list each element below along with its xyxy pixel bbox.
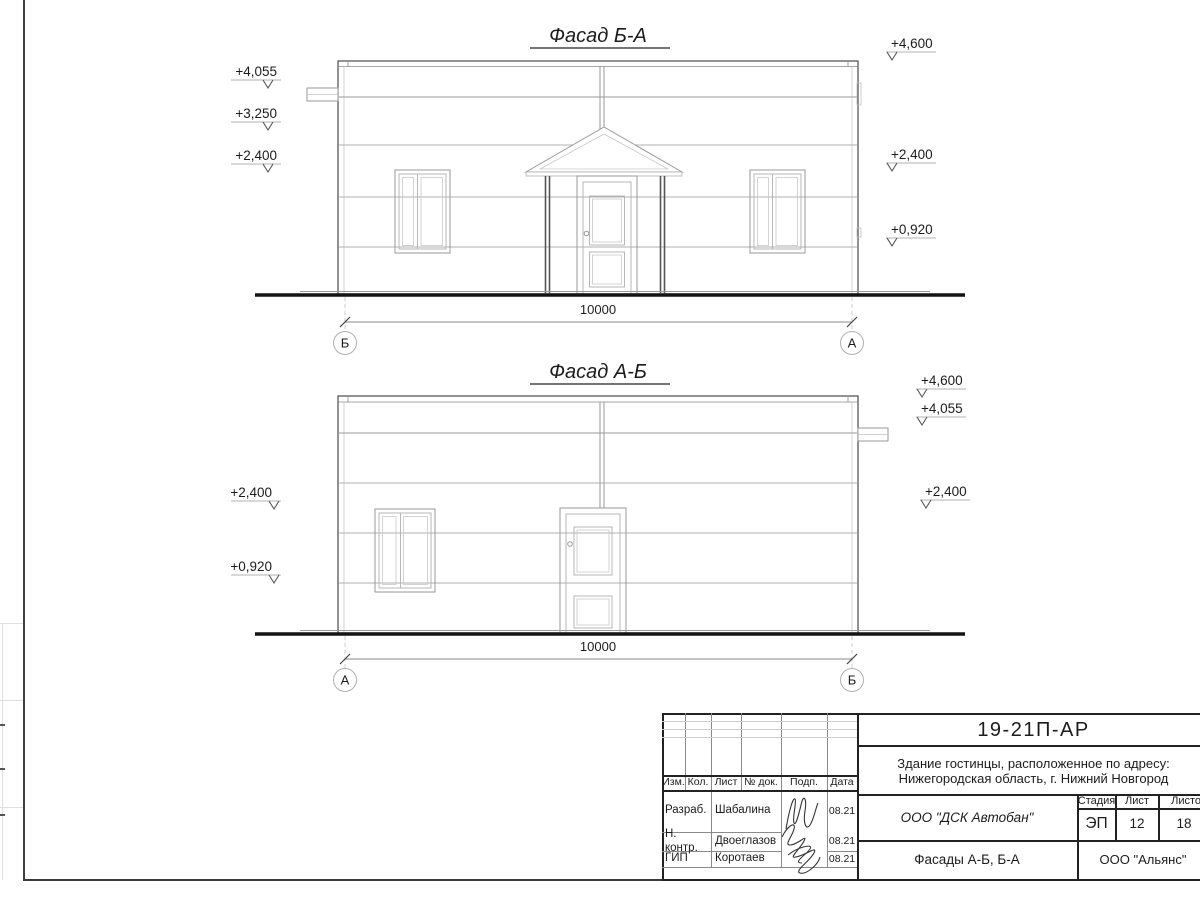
tb-sheets-value: 18 [1159, 809, 1200, 839]
tb-doc-number: 19-21П-АР [859, 715, 1200, 745]
tb-line [662, 729, 857, 730]
svg-text:+4,600: +4,600 [891, 36, 933, 51]
facade-ba-door [577, 176, 637, 294]
svg-text:+3,250: +3,250 [235, 106, 277, 121]
facade-ba-title: Фасад Б-А [549, 25, 647, 47]
facade-ab-title: Фасад А-Б [549, 361, 647, 383]
tb-company: ООО "ДСК Автобан" [859, 796, 1075, 839]
title-block: Изм. Кол. Лист № док. Подп. Дата Разраб.… [662, 713, 1200, 881]
tb-border [662, 879, 1200, 881]
sheet-frame-left [23, 0, 25, 881]
axis-letter: Б [848, 673, 857, 688]
facade-ab-building [338, 396, 858, 633]
tb-name: Двоеглазов [715, 832, 781, 851]
margin-stamp-line [2, 623, 3, 880]
tb-stage-value: ЭП [1078, 809, 1115, 839]
elevation-mark: +2,400 [920, 484, 970, 508]
tb-role: ГИП [665, 851, 711, 867]
tb-col-data: Дата [827, 775, 857, 790]
margin-stamp-mark [0, 768, 5, 770]
svg-text:+2,400: +2,400 [925, 484, 967, 499]
margin-stamp-line [0, 700, 23, 701]
axis-letter: А [341, 673, 350, 688]
facade-ab: Фасад А-Б [230, 361, 970, 692]
facade-ba: Фасад Б-А [231, 25, 965, 355]
elevation-mark: +0,920 [886, 222, 936, 246]
tb-stage-label: Стадия [1078, 794, 1115, 808]
tb-col-podp: Подп. [781, 775, 827, 790]
facade-ba-window-right [750, 170, 805, 253]
facade-ab-door [560, 508, 626, 633]
tb-col-ndok: № док. [741, 775, 781, 790]
svg-text:+0,920: +0,920 [891, 222, 933, 237]
elevation-mark: +4,055 [231, 64, 281, 88]
elevation-mark: +2,400 [230, 485, 281, 509]
tb-project: Здание гостинцы, расположенное по адресу… [859, 749, 1200, 792]
svg-text:+4,055: +4,055 [921, 401, 963, 416]
facade-ba-dim-value: 10000 [580, 302, 616, 317]
tb-role: Н. контр. [665, 832, 711, 851]
tb-sheet-label: Лист [1116, 794, 1158, 808]
margin-stamp-mark [0, 814, 5, 816]
tb-col-izm: Изм. [662, 775, 685, 790]
axis-letter: А [848, 336, 857, 351]
svg-text:+4,055: +4,055 [235, 64, 277, 79]
facade-ab-chimney [600, 402, 604, 508]
facade-ba-axis-right: А [841, 332, 864, 355]
svg-text:+2,400: +2,400 [230, 485, 272, 500]
tb-date: 08.21 [827, 851, 857, 867]
door-knob [584, 231, 589, 236]
door-knob [568, 542, 573, 547]
facade-ba-axis-left: Б [334, 332, 357, 355]
margin-stamp-line [0, 623, 23, 624]
facade-ab-axis-right: Б [841, 669, 864, 692]
tb-org: ООО "Альянс" [1078, 841, 1200, 879]
tb-line [662, 737, 857, 738]
elevation-mark: +2,400 [886, 147, 936, 171]
tb-line [857, 745, 1200, 747]
tb-drawing-title: Фасады А-Б, Б-А [859, 841, 1075, 879]
facade-ab-window [375, 509, 435, 592]
facade-ab-dimension: 10000 [340, 636, 857, 668]
margin-stamp-mark [0, 724, 5, 726]
tb-border [662, 713, 664, 881]
svg-text:+2,400: +2,400 [891, 147, 933, 162]
facade-ba-porch-posts [546, 176, 665, 293]
svg-text:+0,920: +0,920 [230, 559, 272, 574]
axis-letter: Б [341, 336, 350, 351]
elevation-mark: +4,600 [916, 373, 966, 397]
svg-text:+4,600: +4,600 [921, 373, 963, 388]
tb-name: Шабалина [715, 790, 781, 832]
drawing-sheet: Фасад Б-А [0, 0, 1200, 900]
elevation-mark: +3,250 [231, 106, 281, 130]
tb-name: Коротаев [715, 851, 781, 867]
elevation-mark: +4,055 [916, 401, 966, 425]
svg-text:+2,400: +2,400 [235, 148, 277, 163]
facade-ba-dimension: 10000 [340, 297, 857, 331]
elevation-mark: +2,400 [231, 148, 281, 172]
signature-dvoeglazov-korotaev [774, 815, 828, 877]
facade-ab-axis-left: А [334, 669, 357, 692]
facade-ba-porch-canopy [526, 127, 682, 176]
facade-ba-vent [307, 88, 338, 101]
tb-col-list: Лист [711, 775, 741, 790]
elevation-mark: +4,600 [886, 36, 936, 60]
facade-ab-vent [858, 428, 888, 441]
tb-role: Разраб. [665, 790, 711, 832]
tb-line [662, 721, 857, 722]
tb-project-line1: Здание гостинцы, расположенное по адресу… [897, 756, 1169, 771]
tb-sheets-label: Листов [1159, 794, 1200, 808]
tb-col-kol: Кол. [685, 775, 711, 790]
tb-date: 08.21 [827, 790, 857, 832]
elevation-mark: +0,920 [230, 559, 281, 583]
tb-date: 08.21 [827, 832, 857, 851]
tb-project-line2: Нижегородская область, г. Нижний Новгоро… [899, 771, 1169, 786]
facade-ba-window-left [395, 170, 450, 253]
facade-ab-dim-value: 10000 [580, 639, 616, 654]
margin-stamp-line [0, 807, 23, 808]
tb-sheet-value: 12 [1116, 809, 1158, 839]
